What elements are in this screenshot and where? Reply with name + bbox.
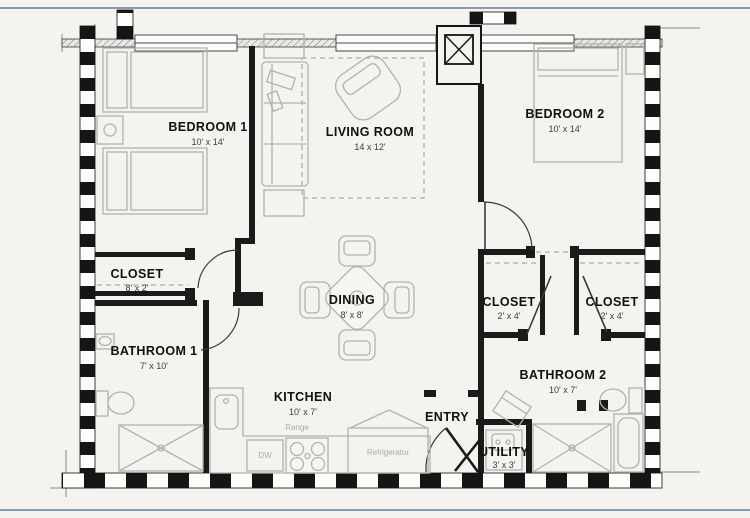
kitchen-sink — [215, 395, 238, 429]
bathtub — [614, 414, 643, 472]
left-wall — [80, 26, 95, 473]
label-entry: ENTRY — [425, 410, 469, 424]
dims-bathroom-1: 7' x 10' — [140, 361, 168, 371]
wall-segment — [478, 84, 484, 202]
lamp — [104, 124, 116, 136]
shower — [119, 425, 203, 471]
label-bathroom-2: BATHROOM 2 — [519, 368, 606, 382]
label-kitchen: KITCHEN — [274, 390, 332, 404]
label-dining: DINING — [329, 293, 375, 307]
wall-stub — [470, 12, 516, 24]
sofa — [262, 62, 308, 186]
label-refrigerator: Refrigerator — [367, 448, 410, 457]
wall-segment — [203, 300, 209, 473]
dims-living-room: 14 x 12' — [354, 142, 386, 152]
label-closet-right-1: CLOSET — [482, 295, 535, 309]
utility-door-leaf — [455, 437, 482, 471]
shaft — [437, 26, 481, 84]
wall-segment — [235, 244, 241, 296]
bedroom-1-door-swing — [198, 250, 238, 288]
label-utility: UTILITY — [479, 445, 529, 459]
dims-closet-right-1: 2' x 4' — [498, 311, 521, 321]
label-closet-right-2: CLOSET — [585, 295, 638, 309]
wall-jamb — [526, 246, 535, 258]
wall-segment — [249, 46, 255, 238]
wall-stub — [117, 10, 133, 39]
dims-utility: 3' x 3' — [493, 460, 516, 470]
dining-chair — [339, 236, 375, 266]
wall-segment — [95, 300, 197, 306]
label-closet-left: CLOSET — [110, 267, 163, 281]
bed — [534, 44, 622, 162]
shower — [533, 424, 611, 472]
cooktop — [286, 438, 328, 473]
nightstand — [97, 116, 123, 144]
label-bedroom-2: BEDROOM 2 — [525, 107, 604, 121]
nightstand — [626, 44, 644, 74]
dining-chair — [339, 330, 375, 360]
dims-bedroom-2: 10' x 14' — [549, 124, 582, 134]
bed — [103, 148, 207, 214]
closet-wall — [95, 252, 191, 257]
dims-dining: 8' x 8' — [341, 310, 364, 320]
wall-segment — [478, 249, 534, 255]
bed — [103, 48, 207, 112]
label-bedroom-1: BEDROOM 1 — [168, 120, 247, 134]
wall-jamb — [577, 400, 586, 411]
wall-jamb — [185, 248, 195, 260]
dims-bedroom-1: 10' x 14' — [192, 137, 225, 147]
label-range: Range — [285, 423, 309, 432]
dims-kitchen: 10' x 7' — [289, 407, 317, 417]
dims-closet-left: 8' x 2' — [126, 283, 149, 293]
label-dishwasher: DW — [258, 451, 272, 460]
refrigerator — [348, 410, 428, 473]
dims-bathroom-2: 10' x 7' — [549, 385, 577, 395]
entry-door-swing — [426, 428, 446, 472]
wall-segment — [570, 249, 645, 255]
wall-segment — [235, 238, 255, 244]
wall-segment — [476, 419, 532, 425]
floor-plan-canvas: BEDROOM 1 10' x 14' LIVING ROOM 14 x 12'… — [0, 0, 750, 518]
wall-segment — [478, 332, 520, 338]
wall-jamb — [233, 292, 263, 306]
label-bathroom-1: BATHROOM 1 — [110, 344, 197, 358]
wall-segment — [610, 332, 645, 338]
armchair — [330, 51, 406, 126]
wall-jamb — [185, 288, 195, 300]
closet-divider — [574, 255, 579, 335]
end-table — [264, 190, 304, 216]
dims-closet-right-2: 2' x 4' — [601, 311, 624, 321]
wall-jamb — [424, 390, 436, 397]
wall-jamb — [518, 329, 528, 341]
floor-plan-page: BEDROOM 1 10' x 14' LIVING ROOM 14 x 12'… — [0, 0, 750, 518]
wall-jamb — [468, 390, 482, 397]
right-wall — [645, 26, 660, 473]
label-living-room: LIVING ROOM — [326, 125, 414, 139]
bottom-wall — [62, 473, 662, 488]
toilet — [96, 391, 134, 416]
bedroom-2-door-swing — [484, 202, 532, 250]
